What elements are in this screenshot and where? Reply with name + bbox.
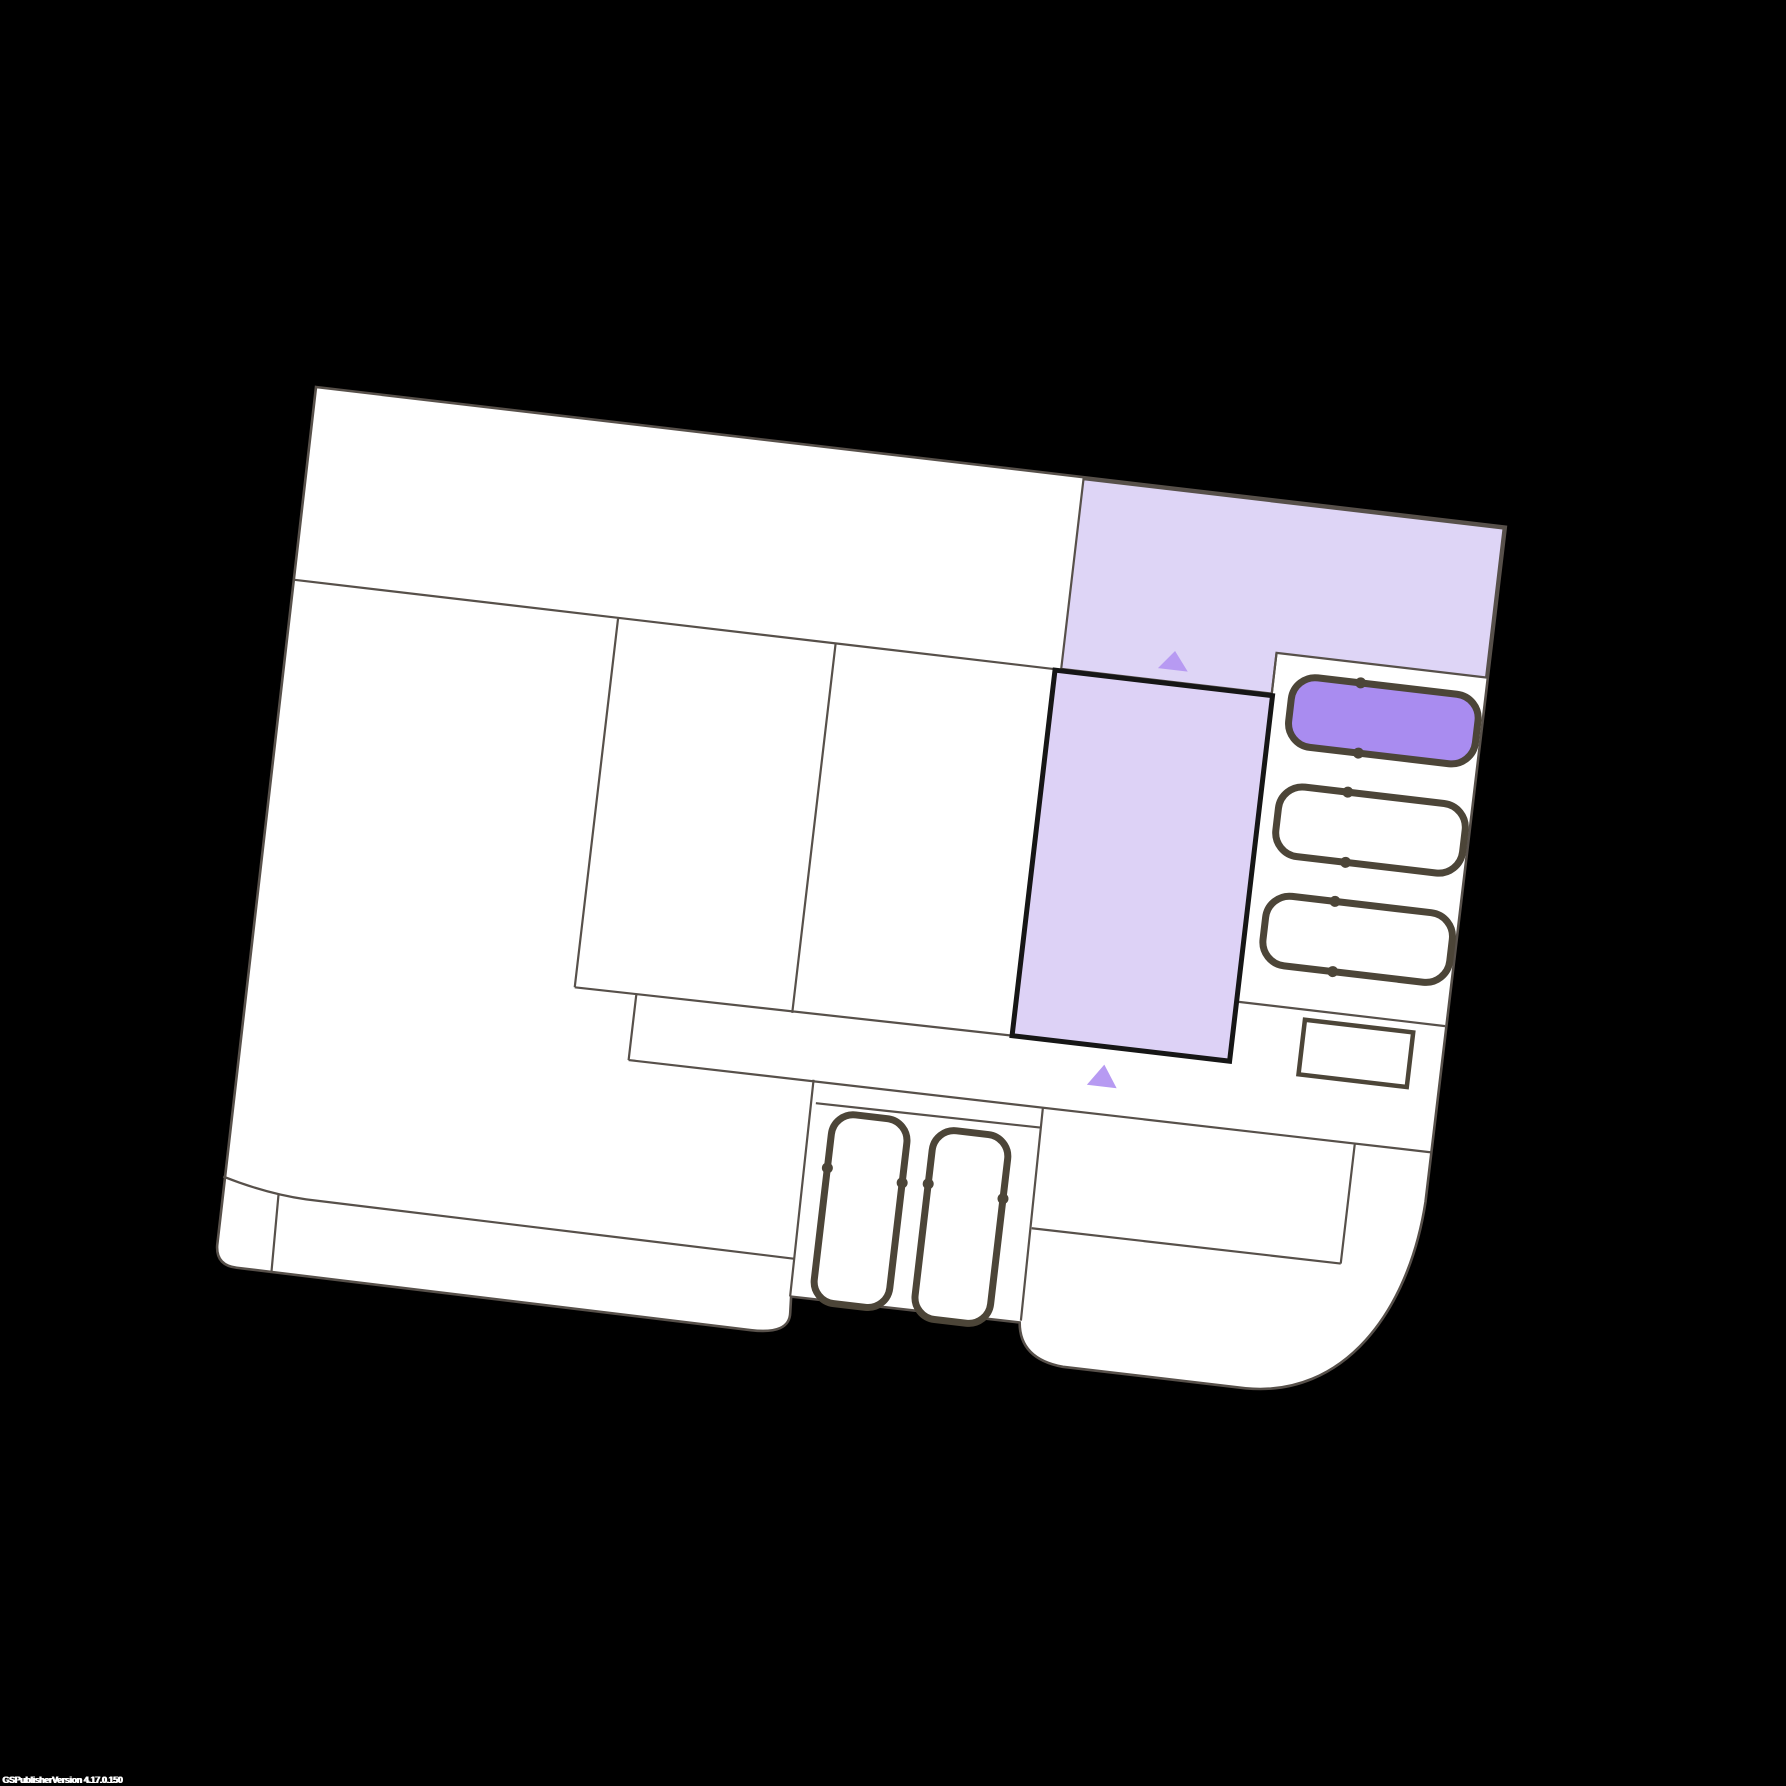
- floor-plan-canvas: [0, 0, 1786, 1786]
- parking-strip: [1260, 670, 1482, 991]
- floor-plan: [213, 387, 1506, 1407]
- screen: { "watermark": { "text": "GSPublisherVer…: [0, 0, 1786, 1786]
- selected-space[interactable]: [1012, 670, 1272, 1061]
- version-watermark: GSPublisherVersion 4.17.0.150: [2, 1775, 122, 1785]
- utility-box: [1299, 1020, 1414, 1087]
